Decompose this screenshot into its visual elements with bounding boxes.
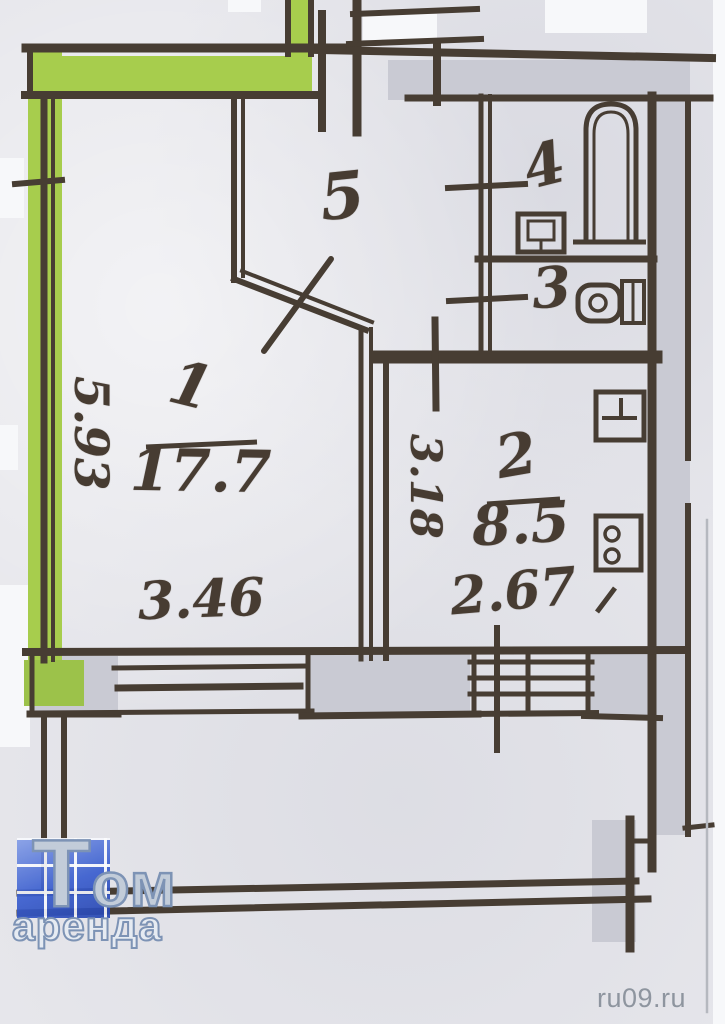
- stove-icon: [596, 516, 641, 612]
- sink-icon: [518, 214, 564, 252]
- room2-dim-bottom: 2.67: [448, 561, 579, 624]
- top-bar: [353, 9, 477, 14]
- logo-tom-arenda: Том аренда: [8, 818, 228, 963]
- stove-burner: [605, 549, 619, 563]
- room2-dim-left: 3.18: [403, 434, 446, 539]
- bottom-wall-middle-block: [306, 654, 470, 716]
- opening-tick: [449, 297, 525, 301]
- room1-area: 17.7: [130, 441, 272, 501]
- site-watermark: ru09.ru: [597, 983, 686, 1014]
- stove-mark: [597, 588, 615, 612]
- window-line: [36, 711, 312, 713]
- door-mark-room1: [264, 259, 331, 351]
- opening-tick: [15, 180, 62, 184]
- wall-line: [302, 714, 478, 716]
- door-stroke: [264, 259, 331, 351]
- door-tick: [435, 320, 436, 408]
- stove-burner: [605, 527, 619, 541]
- window-line: [118, 686, 300, 688]
- white-patch: [713, 0, 725, 1024]
- room2-area: 8.5: [471, 493, 571, 554]
- white-patch: [228, 0, 261, 12]
- kitchen-sink-icon: [596, 392, 644, 440]
- wall-line: [468, 713, 596, 714]
- toilet-icon: [578, 281, 644, 323]
- white-patch: [363, 14, 437, 40]
- floorplan-scan: 5 4 3 1 17.7 3.46 5.93 2 8.5 2.67 3.18 Т…: [0, 0, 725, 1024]
- white-patch: [545, 0, 647, 33]
- white-patch: [0, 425, 18, 470]
- sink-basin: [528, 221, 554, 240]
- room5-number: 5: [317, 163, 368, 231]
- opening-tick: [448, 184, 525, 188]
- logo-line2: аренда: [12, 906, 162, 947]
- wall-line: [584, 716, 660, 718]
- room3-number: 3: [530, 259, 573, 318]
- wall-line: [26, 650, 684, 652]
- bathtub-inner: [594, 112, 628, 243]
- bottom-wall-right-block: [588, 653, 654, 716]
- window-line: [114, 666, 306, 668]
- wall-line: [318, 50, 712, 58]
- stove-body: [596, 516, 641, 570]
- top-wall-highlight: [34, 56, 312, 96]
- bathtub-icon: [573, 104, 646, 243]
- white-patch: [0, 158, 24, 218]
- toilet-bowl-circle: [590, 295, 606, 311]
- room1-dim-left: 5.93: [67, 376, 114, 490]
- toilet-bowl: [578, 285, 620, 321]
- room1-dim-bottom: 3.46: [137, 572, 265, 628]
